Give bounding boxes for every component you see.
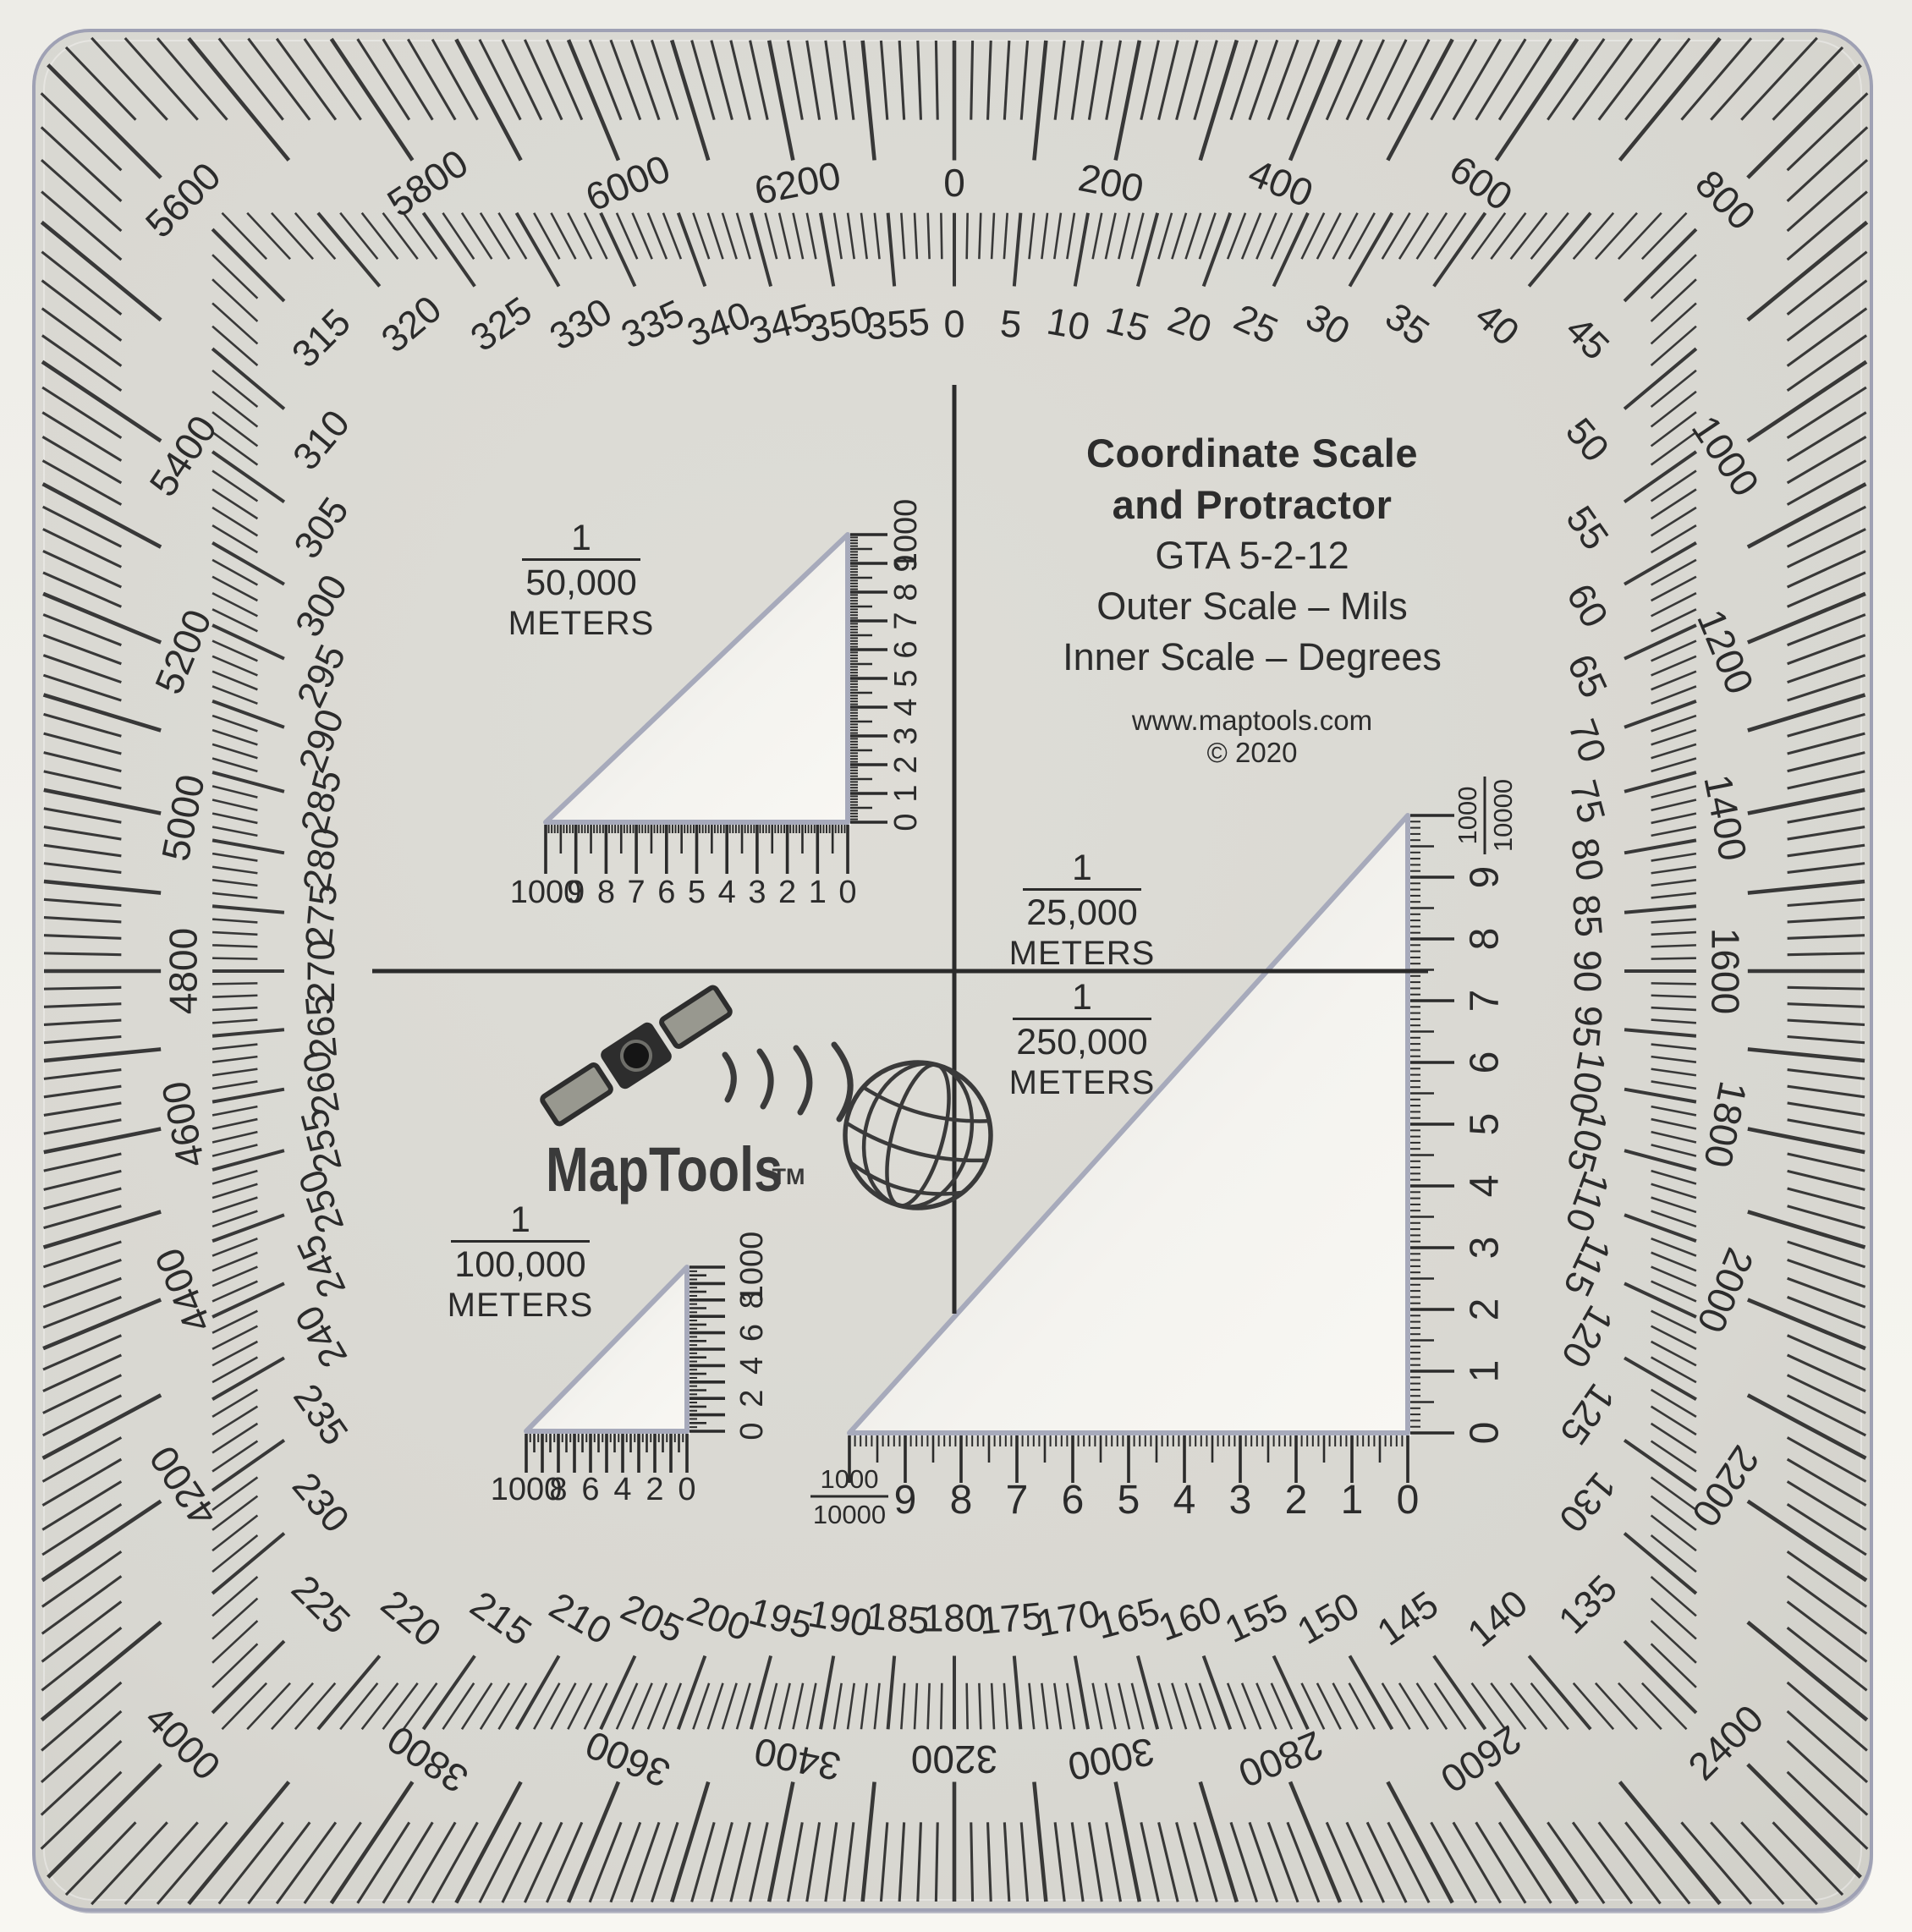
scale-fraction: 100010000 — [1453, 777, 1518, 854]
trademark-mark: TM — [772, 1164, 805, 1189]
scale-number: 9 — [894, 1478, 917, 1523]
scale-number: 8 — [597, 875, 615, 910]
degree-label: 85 — [1564, 892, 1611, 938]
scale-number: 7 — [628, 875, 646, 910]
scale-number: 5 — [888, 669, 924, 687]
scale-number: 8 — [950, 1478, 973, 1523]
degree-label: 175 — [977, 1594, 1044, 1642]
scale-number: 9 — [567, 875, 585, 910]
scale-number: 0 — [734, 1422, 770, 1440]
degree-label: 95 — [1564, 1003, 1611, 1049]
scale-number: 1000 — [888, 499, 924, 571]
scale-number: 6 — [1062, 1478, 1085, 1523]
degree-label: 180 — [922, 1597, 986, 1640]
scale-number: 2 — [778, 875, 796, 910]
scale-number: 8 — [549, 1472, 567, 1507]
scale-number: 2 — [888, 755, 924, 773]
degree-label: 5 — [998, 301, 1023, 346]
degree-label: 185 — [864, 1594, 931, 1642]
scale-number: 7 — [888, 612, 924, 629]
scale-number: 4 — [718, 875, 736, 910]
scale-number: 1 — [809, 875, 827, 910]
scale-number: 1000 — [734, 1232, 770, 1304]
scale-number: 2 — [646, 1472, 663, 1507]
scale-number: 1 — [888, 784, 924, 802]
scale-number: 6 — [657, 875, 675, 910]
svg-text:1000: 1000 — [1453, 787, 1482, 845]
scale-number: 0 — [1397, 1478, 1420, 1523]
scale-number: 6 — [1463, 1051, 1508, 1074]
scale-number: 7 — [1463, 990, 1508, 1013]
scale-number: 3 — [1463, 1237, 1508, 1260]
scale-number: 5 — [688, 875, 706, 910]
degree-label: 355 — [864, 299, 931, 348]
svg-text:10000: 10000 — [1488, 779, 1518, 852]
scale-number: 7 — [1006, 1478, 1029, 1523]
degree-label: 80 — [1563, 835, 1613, 884]
scale-number: 9 — [1463, 866, 1508, 889]
svg-text:1000: 1000 — [821, 1464, 879, 1494]
scale-number: 2 — [1285, 1478, 1308, 1523]
scale-fraction: 100010000 — [810, 1464, 888, 1529]
scale-number: 4 — [888, 698, 924, 716]
degree-label: 0 — [943, 302, 964, 345]
protractor-photo: 0200400600800100012001400160018002000220… — [0, 0, 1912, 1932]
protractor-tool: 0200400600800100012001400160018002000220… — [0, 0, 1912, 1932]
mils-label: 1600 — [1704, 928, 1748, 1014]
scale-number: 0 — [888, 813, 924, 831]
scale-number: 8 — [888, 583, 924, 601]
svg-text:10000: 10000 — [813, 1500, 886, 1529]
brand-wordmark: MapTools — [546, 1134, 783, 1205]
scale-number: 0 — [678, 1472, 695, 1507]
scale-number: 1 — [1463, 1360, 1508, 1383]
scale-number: 4 — [734, 1357, 770, 1375]
scale-number: 3 — [888, 727, 924, 744]
scale-number: 2 — [734, 1390, 770, 1408]
scale-number: 6 — [581, 1472, 599, 1507]
scale-number: 0 — [1463, 1422, 1508, 1445]
mils-label: 0 — [943, 161, 965, 205]
degree-label: 90 — [1566, 950, 1609, 992]
scale-number: 6 — [888, 640, 924, 658]
mils-label: 4800 — [161, 928, 205, 1014]
scale-number: 4 — [1463, 1175, 1508, 1198]
scale-number: 2 — [1463, 1298, 1508, 1321]
degree-label: 10 — [1044, 299, 1093, 349]
scale-number: 5 — [1118, 1478, 1140, 1523]
scale-number: 4 — [613, 1472, 631, 1507]
scale-number: 0 — [838, 875, 856, 910]
scale-number: 6 — [734, 1324, 770, 1342]
scale-number: 8 — [1463, 928, 1508, 951]
scale-number: 1 — [1341, 1478, 1364, 1523]
scale-number: 5 — [1463, 1113, 1508, 1136]
scale-number: 3 — [1229, 1478, 1252, 1523]
mils-label: 3200 — [911, 1737, 997, 1781]
scale-number: 4 — [1173, 1478, 1196, 1523]
scale-number: 3 — [748, 875, 766, 910]
